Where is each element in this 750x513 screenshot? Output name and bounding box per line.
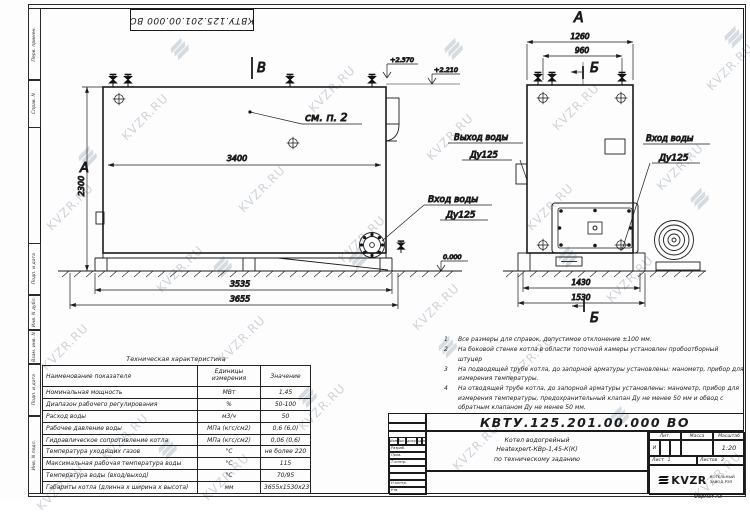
table-row: Температура воды (вход/выход)°С70/95 bbox=[43, 470, 311, 482]
spec-table-title: Техническая характеристика bbox=[42, 355, 310, 363]
dim-3400-label: 3400 bbox=[227, 154, 247, 163]
scale-header: Масштаб bbox=[713, 432, 745, 440]
valve-icon bbox=[548, 73, 555, 86]
note-4: 4На отводящей трубе котла, до запорной а… bbox=[444, 384, 744, 412]
view-a-label: А bbox=[573, 10, 584, 26]
boiler-body-front bbox=[527, 85, 633, 253]
lifting-lug-icon bbox=[287, 137, 300, 150]
company-cell: KVZR КОТЕЛЬНЫЙ ЗАВОД РЭП bbox=[649, 465, 745, 495]
mass-header: Масса bbox=[681, 432, 713, 440]
note-2-text: На боковой стенке котла в области топочн… bbox=[458, 345, 744, 364]
dimensions-side-view bbox=[70, 87, 398, 309]
lifting-lug-icon bbox=[615, 92, 628, 105]
valve-icon bbox=[124, 75, 131, 88]
flue-duct bbox=[386, 98, 399, 141]
note-3-text: На подводящей трубе котла, до запорной а… bbox=[458, 365, 744, 384]
section-b2-bottom-label: Б bbox=[590, 311, 599, 326]
col-ndokum: N докум. bbox=[406, 437, 417, 445]
lit-value: И bbox=[649, 440, 660, 456]
dim-1260-label: 1260 bbox=[570, 32, 589, 41]
table-row: Температура уходящих газов°Сне более 220 bbox=[43, 446, 311, 458]
revision-grid: Изм Лист N докум. Подп. Дата Разраб. Про… bbox=[388, 413, 426, 494]
valve-icon bbox=[286, 75, 293, 88]
section-a-label: А bbox=[79, 161, 89, 176]
section-b-label: В bbox=[257, 61, 266, 76]
note-1-text: Все размеры для справок, допустимое откл… bbox=[458, 335, 652, 344]
lit-header: Лит. bbox=[649, 432, 681, 440]
doc-number: КВТУ.125.201.00.000 ВО bbox=[426, 413, 744, 431]
lifting-lug-icon bbox=[537, 239, 550, 252]
notes-block: 1Все размеры для справок, допустимое отк… bbox=[444, 335, 744, 413]
dim-2300-label: 2300 bbox=[77, 176, 86, 196]
drain-valve-icon bbox=[398, 241, 405, 253]
spec-table: Наименование показателя Единицы измерени… bbox=[42, 365, 311, 494]
ground-line-right bbox=[503, 271, 706, 277]
section-b2-top-label: Б bbox=[590, 61, 599, 76]
table-row: Диапазон рабочего регулирования%50-100 bbox=[43, 398, 311, 410]
product-description: Котел водогрейный Heatexpert-КВр-1,45-К(… bbox=[426, 431, 648, 471]
inlet-label-side-2: Ду125 bbox=[445, 211, 476, 221]
spec-col-name: Наименование показателя bbox=[43, 366, 198, 387]
dim-3655-label: 3655 bbox=[230, 295, 250, 304]
dim-1530-label: 1530 bbox=[571, 293, 590, 302]
table-row: Гидравлическое сопротивление котлаМПа (к… bbox=[43, 434, 311, 446]
sheet-cell: Лист1 bbox=[649, 456, 697, 465]
spec-col-units: Единицы измерения bbox=[198, 366, 261, 387]
row-prov: Пров. bbox=[389, 452, 427, 459]
base-frame-side bbox=[95, 253, 392, 271]
lifting-lug-icon bbox=[615, 239, 628, 252]
note-4-text: На отводящей трубе котла, до запорной ар… bbox=[458, 384, 744, 412]
ground-line-left bbox=[58, 271, 462, 277]
boiler-side-view: 3400 2300 3535 3655 +2.370 +2.21 bbox=[58, 56, 492, 309]
spec-col-value: Значение bbox=[261, 366, 311, 387]
row-utv: Утв. bbox=[389, 487, 427, 495]
inlet-label-front-1: Вход воды bbox=[646, 134, 694, 144]
sheets-cell: Листов2 bbox=[697, 456, 745, 465]
outlet-leader-front bbox=[448, 143, 527, 180]
dim-960-label: 960 bbox=[575, 46, 590, 55]
water-inlet-flange bbox=[360, 233, 385, 258]
row-nkontr: Н.контр. bbox=[389, 480, 427, 487]
product-line-3: по техническому заданию bbox=[427, 455, 647, 464]
lifting-lug-icon bbox=[113, 93, 126, 106]
dim-3535-label: 3535 bbox=[230, 280, 250, 289]
title-block-right: Лит. Масса Масштаб И 1:20 Лист1 Листов2 … bbox=[648, 431, 744, 494]
elev-0000-label: 0.000 bbox=[443, 253, 462, 261]
kvzr-logo-icon bbox=[659, 475, 668, 486]
col-izm: Изм bbox=[389, 437, 398, 445]
product-line-1: Котел водогрейный bbox=[427, 436, 647, 445]
inlet-label-front-2: Ду125 bbox=[658, 154, 689, 164]
valve-icon bbox=[534, 73, 541, 86]
water-outlet-stub bbox=[516, 164, 527, 184]
table-row: Максимальная рабочая температура воды°С1… bbox=[43, 458, 311, 470]
company-name: КОТЕЛЬНЫЙ ЗАВОД РЭП bbox=[710, 475, 735, 484]
title-block-empty-cell bbox=[426, 471, 648, 494]
base-frame-front bbox=[518, 253, 645, 271]
dimensions-front-view bbox=[518, 42, 645, 307]
see-note-label: см. п. 2 bbox=[305, 111, 348, 124]
lifting-lug-icon bbox=[537, 92, 550, 105]
kvzr-logo-text: KVZR bbox=[671, 474, 706, 487]
scale-value: 1:20 bbox=[713, 440, 745, 456]
elevation-marks bbox=[383, 64, 468, 271]
inlet-label-side-1: Вход воды bbox=[428, 195, 478, 205]
valve-icon bbox=[368, 75, 375, 88]
boiler-front-view: А bbox=[448, 10, 710, 326]
elev-2370-label: +2.370 bbox=[390, 56, 414, 64]
table-row: Габариты котла (длинна х ширина х высота… bbox=[43, 482, 311, 494]
elev-2210-label: +2.210 bbox=[434, 66, 458, 74]
note-3: 3На подводящей трубе котла, до запорной … bbox=[444, 365, 744, 384]
outlet-label-front-2: Ду125 bbox=[469, 151, 498, 161]
spec-header-row: Наименование показателя Единицы измерени… bbox=[43, 366, 311, 387]
sight-glass bbox=[605, 139, 625, 154]
col-list: Лист bbox=[398, 437, 406, 445]
dim-1430-label: 1430 bbox=[571, 278, 590, 287]
product-line-2: Heatexpert-КВр-1,45-К(К) bbox=[427, 445, 647, 454]
section-b2-marks bbox=[571, 62, 584, 312]
valve-icon bbox=[109, 75, 116, 88]
note-1: 1Все размеры для справок, допустимое отк… bbox=[444, 335, 744, 344]
title-block: Изм Лист N докум. Подп. Дата Разраб. Про… bbox=[388, 413, 744, 494]
row-razrab: Разраб. bbox=[389, 445, 427, 452]
note-2: 2На боковой стенке котла в области топоч… bbox=[444, 345, 744, 364]
table-row: Номинальная мощностьМВт1,45 bbox=[43, 387, 311, 399]
blower-fan bbox=[655, 221, 701, 271]
table-row: Рабочее давление водыМПа (кгс/см2)0,6 (6… bbox=[43, 422, 311, 434]
table-row: Расход водым3/ч50 bbox=[43, 410, 311, 422]
drawing-sheet: KVZR.RU KVZR.RU KVZR.RU KVZR.RU KVZR.RU … bbox=[0, 0, 750, 500]
row-tkontr: Т.контр. bbox=[389, 459, 427, 466]
format-label: Формат А3 bbox=[678, 494, 738, 500]
outlet-label-front-1: Выход воды bbox=[454, 133, 508, 143]
